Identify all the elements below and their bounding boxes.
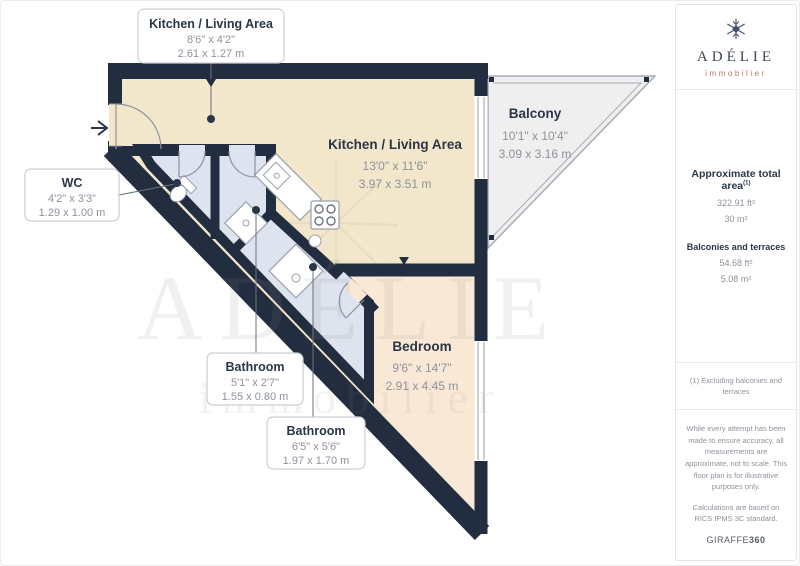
balcony-corner-mark	[489, 77, 494, 82]
stove-icon	[311, 201, 339, 229]
room-name: Bedroom	[392, 339, 451, 354]
callout-imperial: 5'1" x 2'7"	[231, 377, 279, 389]
disclaimer: While every attempt has been made to ens…	[676, 409, 796, 560]
footnote-marker: (1)	[743, 180, 750, 186]
disclaimer-text-2: Calculations are based on RICS IPMS 3C s…	[684, 502, 788, 525]
callout-kitchen-strip: Kitchen / Living Area 8'6" x 4'2" 2.61 x…	[138, 9, 284, 63]
callout-imperial: 6'5" x 5'6"	[292, 441, 340, 453]
callout-metric: 1.97 x 1.70 m	[283, 455, 350, 467]
room-name: Kitchen / Living Area	[328, 137, 462, 152]
callout-bathroom-1: Bathroom 5'1" x 2'7" 1.55 x 0.80 m	[207, 353, 303, 405]
balconies-imperial: 54.68 ft²	[719, 258, 752, 268]
room-label-bedroom: Bedroom 9'6" x 14'7" 2.91 x 4.45 m	[386, 339, 459, 393]
balconies-metric: 5.08 m²	[721, 274, 752, 284]
disclaimer-text-1: While every attempt has been made to ens…	[684, 423, 788, 493]
room-metric: 3.09 x 3.16 m	[499, 147, 572, 161]
callout-imperial: 8'6" x 4'2"	[187, 34, 235, 46]
callout-metric: 2.61 x 1.27 m	[178, 48, 245, 60]
total-area-imperial: 322.91 ft²	[717, 198, 755, 208]
floorplan-page: ADÉLIE immobilier Kitchen / Living Area …	[0, 0, 800, 566]
room-metric: 3.97 x 3.51 m	[359, 177, 432, 191]
brand-subtitle: immobilier	[676, 69, 796, 78]
sink-icon	[309, 235, 321, 247]
callout-title: Bathroom	[286, 424, 345, 438]
callout-title: Bathroom	[225, 360, 284, 374]
balconies-label: Balconies and terraces	[687, 242, 786, 252]
brand-logo: ADÉLIE immobilier	[676, 5, 796, 90]
room-imperial: 13'0" x 11'6"	[363, 159, 428, 173]
callout-title: WC	[62, 176, 83, 190]
callout-metric: 1.29 x 1.00 m	[39, 207, 106, 219]
watermark-text: ADÉLIE	[137, 257, 565, 359]
snowflake-icon	[725, 18, 747, 40]
floorplan-drawing: ADÉLIE immobilier Kitchen / Living Area …	[1, 1, 675, 566]
total-area-label: Approximate total area(1)	[682, 168, 790, 192]
balcony-corner-mark	[489, 235, 494, 240]
callout-wc: WC 4'2" x 3'3" 1.29 x 1.00 m	[25, 169, 119, 221]
callout-metric: 1.55 x 0.80 m	[222, 391, 289, 403]
area-footnote: (1) Excluding balconies and terraces	[676, 362, 796, 410]
room-metric: 2.91 x 4.45 m	[386, 379, 459, 393]
room-imperial: 9'6" x 14'7"	[392, 361, 451, 375]
entry-arrow-icon	[91, 121, 107, 135]
total-area-metric: 30 m²	[724, 214, 747, 224]
callout-bathroom-2: Bathroom 6'5" x 5'6" 1.97 x 1.70 m	[267, 417, 365, 469]
balcony-area	[488, 76, 655, 248]
area-stats: Approximate total area(1) 322.91 ft² 30 …	[676, 90, 796, 362]
callout-imperial: 4'2" x 3'3"	[48, 193, 96, 205]
room-imperial: 10'1" x 10'4"	[502, 129, 568, 143]
giraffe360-logo: GIRAFFE360	[684, 534, 788, 548]
room-label-balcony: Balcony 10'1" x 10'4" 3.09 x 3.16 m	[499, 106, 572, 161]
brand-name: ADÉLIE	[676, 49, 796, 66]
callout-title: Kitchen / Living Area	[149, 17, 274, 31]
room-name: Balcony	[509, 106, 562, 121]
balcony-corner-mark	[644, 77, 649, 82]
window-kitchen	[475, 96, 488, 179]
info-panel: ADÉLIE immobilier Approximate total area…	[675, 4, 797, 561]
